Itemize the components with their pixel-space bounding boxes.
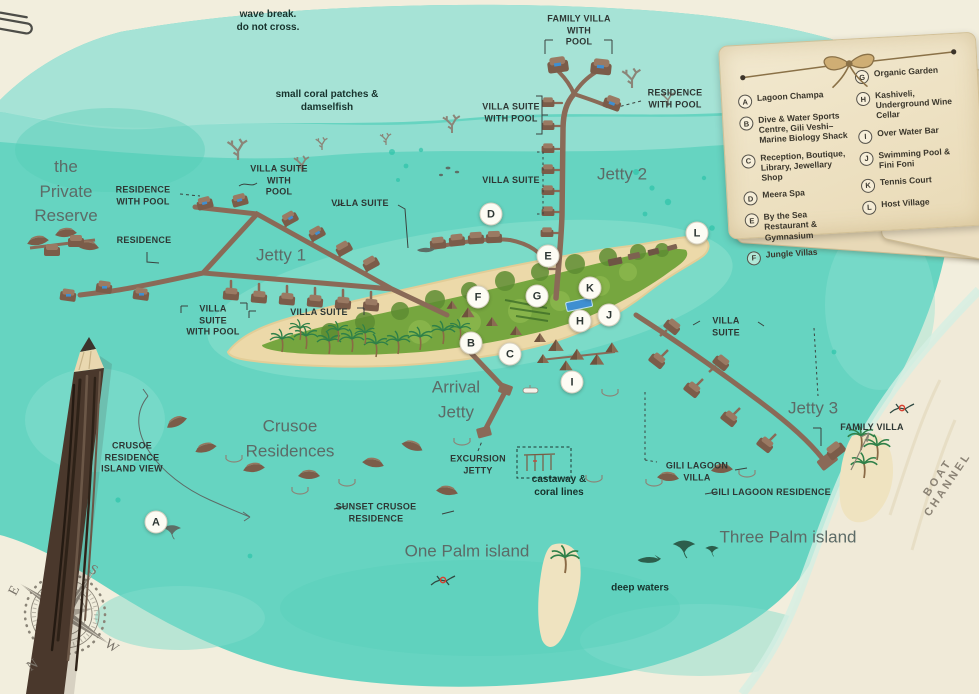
legend-item-letter: H bbox=[856, 92, 871, 107]
legend-item-label: By the Sea Restaurant & Gymnasium bbox=[763, 207, 854, 242]
legend-item-letter: C bbox=[741, 154, 756, 169]
map-marker-k: K bbox=[579, 277, 602, 300]
legend-item-label: Dive & Water Sports Centre, Gili Veshi– … bbox=[758, 110, 848, 145]
legend-item: F Jungle Villas bbox=[746, 244, 855, 265]
legend-item-label: Jungle Villas bbox=[765, 246, 817, 259]
legend-item-letter: B bbox=[739, 116, 754, 131]
legend-item: B Dive & Water Sports Centre, Gili Veshi… bbox=[739, 110, 849, 147]
legend-item: J Swimming Pool & Fini Foni bbox=[859, 144, 974, 171]
map-marker-h: H bbox=[569, 310, 592, 333]
legend-item-label: Reception, Boutique, Library, Jewellary … bbox=[760, 147, 851, 182]
legend-item: H Kashiveli, Underground Wine Cellar bbox=[856, 85, 971, 122]
legend-item-letter: E bbox=[744, 213, 759, 228]
map-marker-d: D bbox=[480, 203, 503, 226]
legend-item-label: Tennis Court bbox=[880, 174, 932, 187]
legend-item: E By the Sea Restaurant & Gymnasium bbox=[744, 207, 854, 244]
legend-item-letter: D bbox=[743, 191, 758, 206]
legend-item-letter: I bbox=[858, 129, 873, 144]
legend-item: D Meera Spa bbox=[743, 185, 852, 206]
resort-map-canvas: wave break. do not cross. small coral pa… bbox=[0, 0, 979, 694]
map-marker-i: I bbox=[561, 371, 584, 394]
legend-item-letter: K bbox=[861, 178, 876, 193]
map-marker-a: A bbox=[145, 511, 168, 534]
legend-item-letter: J bbox=[859, 151, 874, 166]
legend-paper: A Lagoon Champa B Dive & Water Sports Ce… bbox=[718, 32, 979, 240]
map-marker-c: C bbox=[499, 343, 522, 366]
legend-item-letter: L bbox=[862, 200, 877, 215]
legend-item-label: Swimming Pool & Fini Foni bbox=[878, 146, 951, 170]
legend-item: L Host Village bbox=[862, 194, 977, 215]
legend-item-label: Over Water Bar bbox=[877, 124, 939, 138]
legend-item-label: Kashiveli, Underground Wine Cellar bbox=[875, 85, 971, 121]
legend-item: C Reception, Boutique, Library, Jewellar… bbox=[741, 147, 851, 184]
legend-item-letter: F bbox=[747, 251, 762, 266]
map-marker-g: G bbox=[526, 285, 549, 308]
legend-item: I Over Water Bar bbox=[858, 123, 973, 144]
legend-item-label: Meera Spa bbox=[762, 188, 805, 201]
map-marker-j: J bbox=[598, 304, 621, 327]
map-marker-b: B bbox=[460, 332, 483, 355]
legend-item: K Tennis Court bbox=[861, 172, 976, 193]
legend-item-label: Host Village bbox=[881, 196, 930, 209]
legend-item-letter: A bbox=[738, 94, 753, 109]
map-marker-e: E bbox=[537, 245, 560, 268]
map-marker-l: L bbox=[686, 222, 709, 245]
map-marker-f: F bbox=[467, 286, 490, 309]
